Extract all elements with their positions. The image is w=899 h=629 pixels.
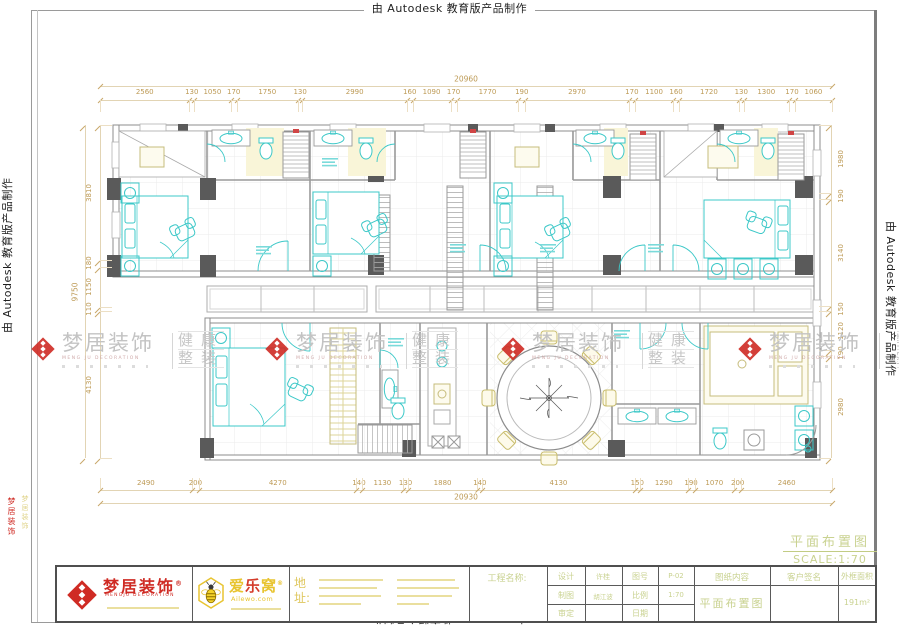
staircase bbox=[460, 129, 486, 178]
dimension-value: 130 bbox=[185, 88, 198, 96]
field-label: 图号 bbox=[632, 571, 648, 582]
sheet-border-left-inner bbox=[37, 10, 38, 622]
dimension-value: 1070 bbox=[705, 479, 723, 487]
staircase bbox=[778, 131, 804, 180]
window-frames bbox=[112, 124, 821, 408]
dimension-value: 150 bbox=[837, 302, 845, 315]
dimension-value: 1300 bbox=[757, 88, 775, 96]
wardrobe bbox=[121, 183, 139, 203]
brand2-sub: Ailewo.com bbox=[231, 595, 273, 603]
toilet bbox=[611, 138, 625, 159]
dimension-value: 2980 bbox=[837, 398, 845, 416]
dimension-value: 2460 bbox=[778, 479, 796, 487]
brand1-sub: MENGJU DECORATION bbox=[105, 593, 175, 598]
content-label: 图纸内容 bbox=[715, 571, 749, 583]
mengju-logo-icon bbox=[63, 576, 101, 614]
bath-highlights bbox=[246, 128, 778, 176]
mengju-logo-icon bbox=[735, 334, 765, 364]
dimension-value: 130 bbox=[293, 88, 306, 96]
walls bbox=[113, 125, 820, 460]
left-edge-brand-gold: 梦居装饰 bbox=[20, 495, 30, 531]
floor-plan bbox=[0, 0, 899, 629]
field-value: 1:70 bbox=[668, 591, 684, 599]
dimension-value: 1770 bbox=[479, 88, 497, 96]
wardrobe bbox=[494, 256, 512, 276]
dimension-value: 190 bbox=[684, 479, 697, 487]
staircase bbox=[630, 131, 656, 180]
mengju-logo-icon bbox=[498, 334, 528, 364]
dimension-total: 20930 bbox=[452, 493, 480, 502]
dimension-value: 1150 bbox=[85, 278, 93, 296]
wardrobe bbox=[795, 430, 813, 450]
wardrobe bbox=[795, 406, 813, 426]
dimension-value: 160 bbox=[403, 88, 416, 96]
door-label bbox=[648, 244, 664, 252]
dimension-annotations: 2560130105017017501302990160109017017701… bbox=[0, 0, 899, 629]
drawing-title: 平面布置图 bbox=[783, 531, 877, 552]
bed bbox=[313, 192, 379, 254]
dimension-value: 1880 bbox=[434, 479, 452, 487]
dimension-value: 4130 bbox=[550, 479, 568, 487]
autodesk-banner-left: 由 Autodesk 教育版产品制作 bbox=[0, 171, 15, 341]
watermark: 梦居装饰 MENG JU DECORATION 健康整装 bbox=[28, 331, 224, 369]
field-label: 日期 bbox=[632, 608, 648, 619]
staircase-yellow bbox=[330, 328, 356, 444]
bed bbox=[497, 196, 563, 258]
dimension-value: 170 bbox=[785, 88, 798, 96]
floor-grid-lower bbox=[210, 323, 814, 455]
wardrobe bbox=[708, 259, 726, 279]
bed bbox=[122, 196, 188, 258]
field-value: P-02 bbox=[668, 572, 684, 580]
dimension-value: 170 bbox=[447, 88, 460, 96]
dimension-value: 1120 bbox=[837, 322, 845, 340]
armchair bbox=[544, 217, 575, 244]
wardrobe bbox=[760, 259, 778, 279]
dimension-value: 2970 bbox=[568, 88, 586, 96]
dimension-value: 110 bbox=[85, 303, 93, 316]
dimension-total: 9750 bbox=[71, 280, 80, 303]
dimension-value: 1130 bbox=[373, 479, 391, 487]
sink bbox=[576, 130, 614, 146]
kitchen bbox=[428, 328, 460, 448]
toilet bbox=[259, 138, 273, 159]
dimension-value: 170 bbox=[227, 88, 240, 96]
wardrobe bbox=[494, 183, 512, 203]
dimension-value: 4270 bbox=[269, 479, 287, 487]
toilet bbox=[359, 138, 373, 159]
columns bbox=[107, 124, 817, 458]
sink bbox=[212, 130, 250, 146]
wardrobe bbox=[313, 256, 331, 276]
sink bbox=[314, 130, 352, 146]
staircase-hatch bbox=[358, 425, 412, 453]
watermark-tagline: 健康整装 bbox=[178, 331, 224, 368]
dimension-value: 4130 bbox=[85, 376, 93, 394]
dimension-value: 1050 bbox=[203, 88, 221, 96]
round-dining-table bbox=[482, 331, 616, 465]
wardrobe bbox=[212, 328, 230, 348]
toilet bbox=[391, 398, 405, 419]
field-label: 审定 bbox=[558, 608, 574, 619]
partitions bbox=[207, 131, 814, 455]
door-label bbox=[322, 158, 338, 166]
watermark-sub: MENG JU DECORATION bbox=[62, 356, 170, 361]
area-label: 外框面积 bbox=[841, 571, 873, 582]
dimension-value: 3810 bbox=[85, 184, 93, 202]
dimension-value: 2560 bbox=[136, 88, 154, 96]
dimension-value: 130 bbox=[399, 479, 412, 487]
field-value: 许桂 bbox=[596, 572, 610, 582]
dimension-value: 190 bbox=[837, 189, 845, 202]
dimension-value: 3140 bbox=[837, 244, 845, 262]
dimension-value: 1750 bbox=[258, 88, 276, 96]
content-value: 平面布置图 bbox=[700, 595, 765, 611]
sign-label: 客户签名 bbox=[787, 571, 821, 583]
dimension-value: 200 bbox=[189, 479, 202, 487]
project-label: 工程名称: bbox=[487, 571, 526, 584]
dimension-value: 1060 bbox=[805, 88, 823, 96]
staircase bbox=[283, 129, 309, 178]
mengju-logo-icon bbox=[28, 334, 58, 364]
dimension-value: 160 bbox=[669, 88, 682, 96]
dimension-value: 1290 bbox=[655, 479, 673, 487]
watermark-brand: 梦居装饰 bbox=[62, 331, 170, 355]
watermark-dots bbox=[62, 365, 148, 368]
address-label: 地址: bbox=[294, 576, 308, 606]
armchair bbox=[169, 217, 200, 244]
right-bath bbox=[713, 425, 816, 455]
autodesk-banner-top: 由 Autodesk 教育版产品制作 bbox=[0, 0, 899, 16]
armchair bbox=[361, 213, 392, 240]
corridor-panels bbox=[207, 286, 814, 312]
dimension-value: 1100 bbox=[645, 88, 663, 96]
drawing-title-box: 平面布置图 SCALE:1:70 bbox=[783, 531, 877, 566]
ailewo-bee-icon bbox=[196, 572, 226, 614]
door-arcs bbox=[207, 144, 735, 368]
dimension-value: 2990 bbox=[346, 88, 364, 96]
dimension-value: 130 bbox=[735, 88, 748, 96]
dimension-value: 190 bbox=[837, 346, 845, 359]
floor-diagonal-tiles bbox=[490, 323, 612, 455]
table-centerpiece bbox=[520, 378, 578, 418]
dimension-value: 150 bbox=[631, 479, 644, 487]
armchair bbox=[742, 210, 773, 236]
field-label: 比例 bbox=[632, 590, 648, 601]
dimension-value: 1090 bbox=[423, 88, 441, 96]
corner-closets bbox=[119, 131, 717, 177]
watermark: 梦居装饰 MENG JU DECORATION 健康整装 bbox=[498, 331, 694, 369]
dressers bbox=[140, 146, 738, 168]
cad-floor-plan-sheet: { "autodesk_notice": "由 Autodesk 教育版产品制作… bbox=[0, 0, 899, 629]
autodesk-banner-right: 由 Autodesk 教育版产品制作 bbox=[883, 213, 899, 383]
area-value: 191m² bbox=[844, 598, 870, 607]
dimension-value: 1980 bbox=[837, 150, 845, 168]
ladders bbox=[374, 186, 553, 310]
watermark: 梦居装饰 MENG JU DECORATION 健康整装 bbox=[262, 331, 458, 369]
dimension-value: 200 bbox=[731, 479, 744, 487]
door-label bbox=[540, 244, 556, 252]
sheet-border-left bbox=[31, 10, 32, 622]
field-value: 胡江波 bbox=[593, 591, 613, 601]
door-label bbox=[388, 338, 404, 346]
door-label bbox=[614, 330, 630, 338]
sink bbox=[720, 130, 758, 146]
bed bbox=[213, 348, 285, 426]
wardrobe bbox=[121, 256, 139, 276]
brand2-name: 爱乐窝® bbox=[229, 575, 284, 596]
dimension-value: 140 bbox=[352, 479, 365, 487]
door-label bbox=[256, 246, 272, 254]
wardrobe bbox=[734, 259, 752, 279]
dimension-value: 1720 bbox=[700, 88, 718, 96]
dimension-value: 180 bbox=[85, 257, 93, 270]
dimension-value: 2490 bbox=[137, 479, 155, 487]
mengju-logo-icon bbox=[262, 334, 292, 364]
bed bbox=[704, 200, 790, 258]
toilet bbox=[761, 138, 775, 159]
dimension-value: 170 bbox=[625, 88, 638, 96]
field-label: 制图 bbox=[558, 590, 574, 601]
armchair bbox=[283, 377, 314, 404]
left-edge-brand-red: 梦居装饰 bbox=[6, 497, 17, 537]
title-block: 梦居装饰® MENGJU DECORATION 爱乐窝® Ailewo.com … bbox=[55, 565, 877, 623]
dimension-value: 190 bbox=[515, 88, 528, 96]
dimension-value: 140 bbox=[473, 479, 486, 487]
dimension-total: 20960 bbox=[452, 75, 480, 84]
floor-grid-upper bbox=[119, 131, 814, 271]
sink bbox=[618, 408, 656, 424]
field-label: 设计 bbox=[558, 571, 574, 582]
door-label bbox=[450, 244, 466, 252]
tatami-platform bbox=[704, 326, 808, 404]
sink bbox=[382, 370, 398, 408]
sink bbox=[658, 408, 696, 424]
